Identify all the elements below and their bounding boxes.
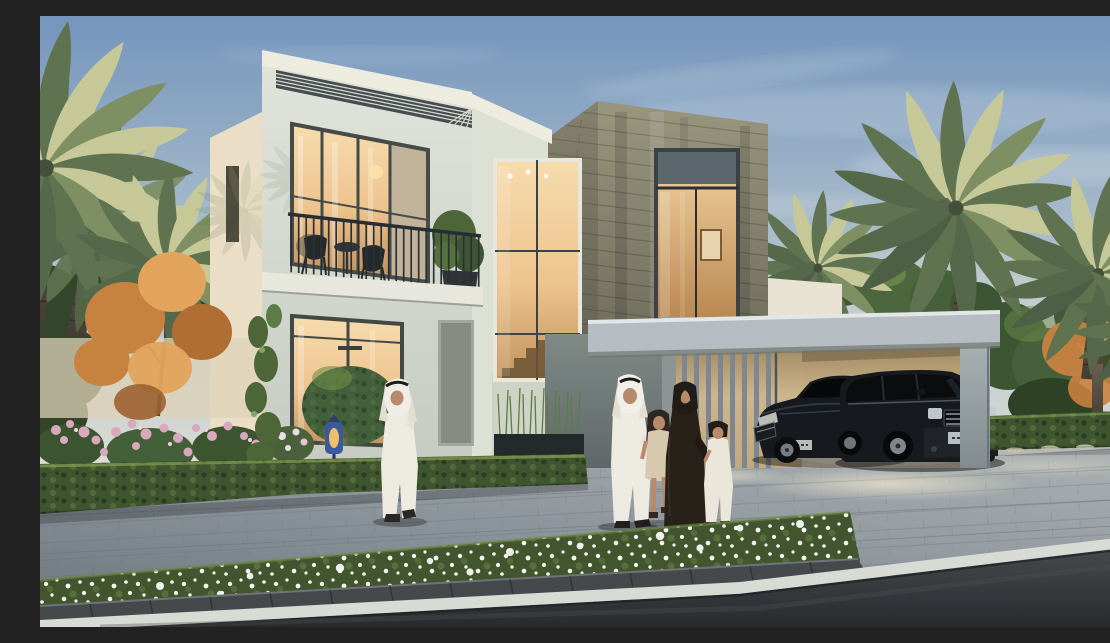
face <box>623 388 637 404</box>
face <box>653 416 665 430</box>
indoor-lamp <box>369 165 383 179</box>
face <box>391 391 404 406</box>
framed-picture <box>701 230 721 260</box>
balcony <box>262 210 484 306</box>
villa-scene <box>40 16 1110 627</box>
architectural-rendering: Dusk rendering of a modern two-storey vi… <box>40 16 1110 627</box>
suv-headlight-left <box>928 408 942 419</box>
stone-window <box>656 150 738 320</box>
carport-column <box>960 334 990 468</box>
ceiling-light <box>338 346 362 350</box>
side-parapet <box>768 278 842 320</box>
face <box>713 427 724 439</box>
